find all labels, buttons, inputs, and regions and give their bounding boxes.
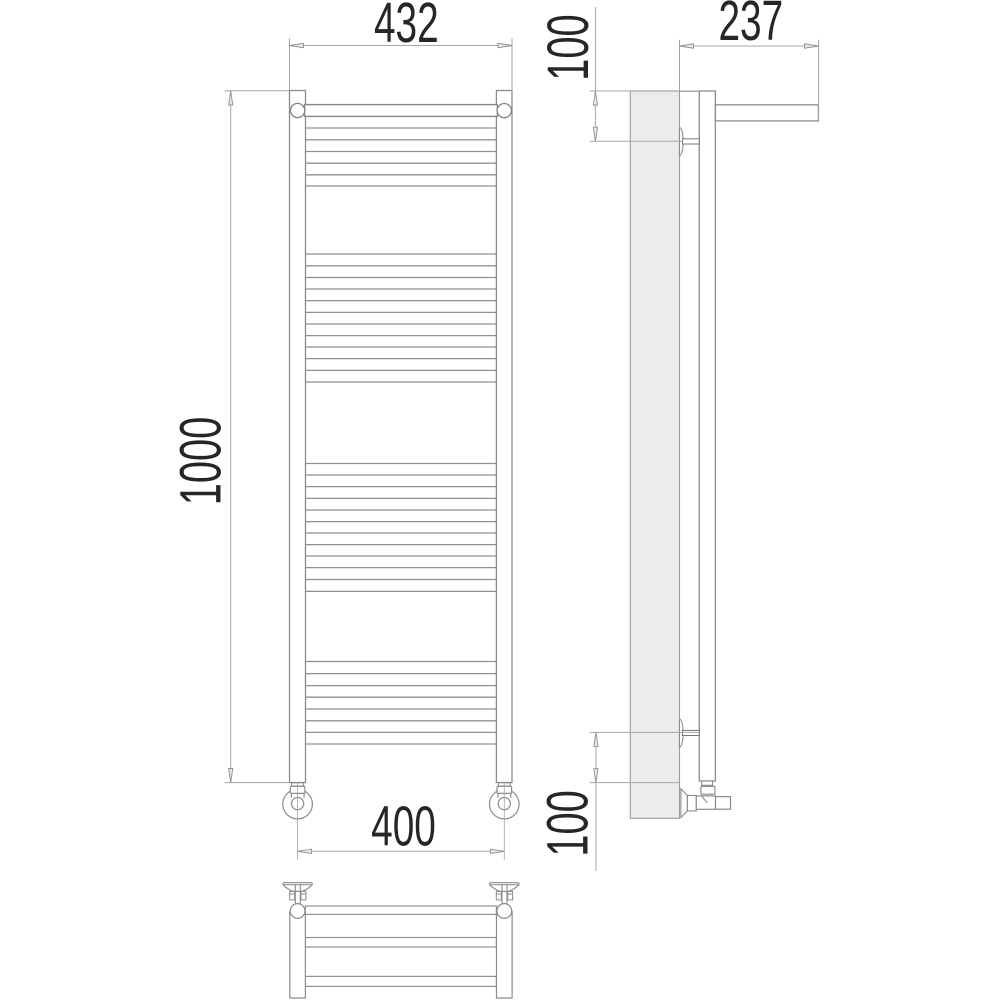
svg-text:100: 100 — [535, 14, 600, 80]
svg-text:100: 100 — [535, 790, 600, 856]
svg-text:432: 432 — [374, 0, 439, 55]
svg-text:400: 400 — [371, 795, 436, 858]
svg-text:237: 237 — [718, 0, 783, 53]
svg-text:1000: 1000 — [168, 417, 233, 505]
